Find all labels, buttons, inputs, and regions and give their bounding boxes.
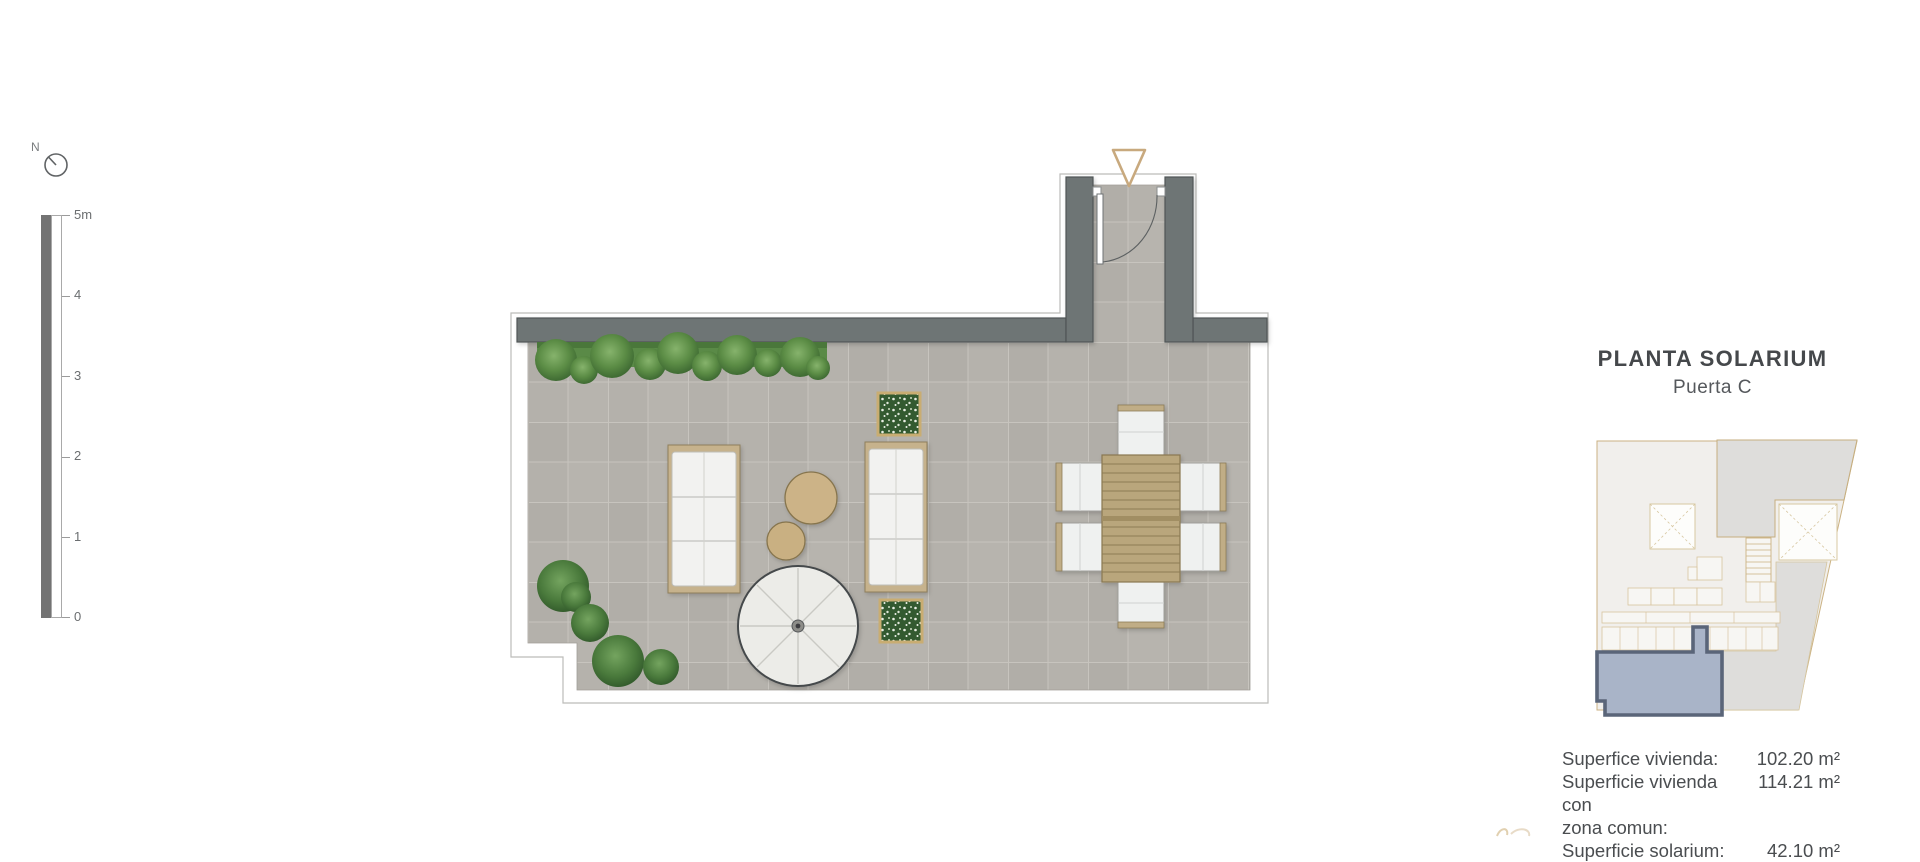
scale-tick — [62, 215, 70, 216]
dining-chair — [1056, 523, 1102, 571]
north-label: N — [31, 140, 40, 154]
scale-bar-track — [51, 215, 62, 618]
key-plan — [1593, 436, 1863, 728]
dining-chair — [1118, 580, 1164, 628]
scale-label: 0 — [74, 609, 81, 624]
area-row: Superficie solarium: 42.10 m² — [1562, 839, 1840, 862]
scale-bar-fill — [41, 215, 51, 618]
scale-label: 2 — [74, 448, 81, 463]
area-row: Superficie vivienda con 114.21 m² — [1562, 770, 1840, 816]
area-label: Superfice vivienda: — [1562, 747, 1750, 770]
dining-chair — [1180, 523, 1226, 571]
scale-bar: 5m 4 3 2 1 0 — [41, 215, 101, 618]
surface-area-table: Superfice vivienda: 102.20 m² Superficie… — [1562, 747, 1840, 862]
area-label: Superficie solarium: — [1562, 839, 1750, 862]
area-value — [1750, 816, 1840, 839]
scale-label: 4 — [74, 287, 81, 302]
planter — [878, 393, 920, 435]
title-block: PLANTA SOLARIUM Puerta C — [1570, 346, 1855, 399]
keyplan-shaft — [1650, 504, 1695, 549]
door-leaf — [1097, 194, 1103, 264]
page-subtitle: Puerta C — [1570, 377, 1855, 399]
area-label: Superficie vivienda con — [1562, 770, 1750, 816]
area-value: 42.10 m² — [1750, 839, 1840, 862]
scale-tick — [62, 376, 70, 377]
keyplan-stairs — [1746, 538, 1775, 602]
door-jamb — [1157, 187, 1165, 196]
scale-tick — [62, 537, 70, 538]
compass-circle — [40, 148, 74, 182]
parasol — [738, 566, 858, 686]
keyplan-shaft — [1779, 504, 1837, 560]
dining-chair — [1056, 463, 1102, 511]
dining-chair — [1118, 405, 1164, 455]
sun-lounger — [865, 442, 927, 592]
north-compass-icon: N — [28, 140, 78, 186]
planter — [880, 600, 922, 642]
area-value: 114.21 m² — [1750, 770, 1840, 816]
area-value: 102.20 m² — [1750, 747, 1840, 770]
logo-fragment-icon — [1483, 824, 1553, 837]
dining-chair — [1180, 463, 1226, 511]
floorplan-page: N 5m 4 3 2 1 0 — [0, 0, 1920, 837]
area-label: zona comun: — [1562, 816, 1750, 839]
area-row: zona comun: — [1562, 816, 1840, 839]
sun-lounger — [668, 445, 740, 593]
scale-tick — [62, 457, 70, 458]
scale-label: 1 — [74, 529, 81, 544]
area-row: Superfice vivienda: 102.20 m² — [1562, 747, 1840, 770]
page-title: PLANTA SOLARIUM — [1570, 346, 1855, 372]
solarium-floor-plan — [500, 130, 1300, 720]
dining-table — [1102, 455, 1180, 582]
entrance-arrow-icon — [1113, 150, 1145, 186]
scale-label: 5m — [74, 207, 92, 222]
scale-tick — [62, 296, 70, 297]
scale-tick — [62, 617, 70, 618]
scale-label: 3 — [74, 368, 81, 383]
